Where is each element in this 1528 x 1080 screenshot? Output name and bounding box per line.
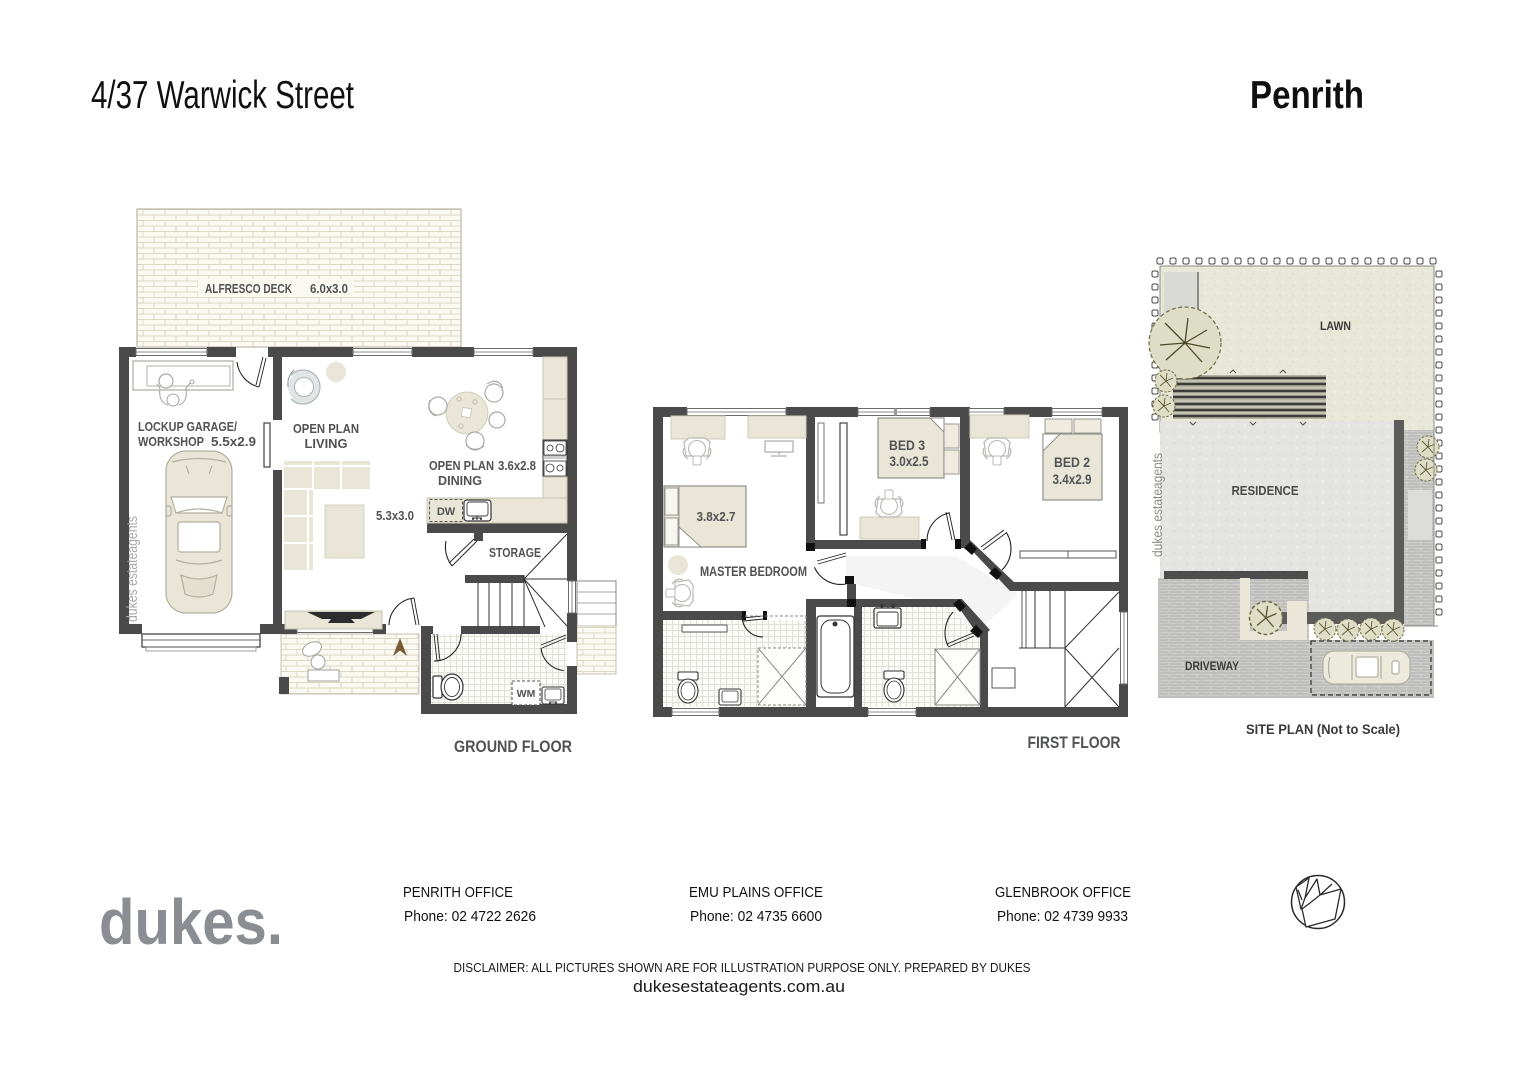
svg-text:3.8x2.7: 3.8x2.7 bbox=[697, 509, 736, 524]
svg-text:SITE PLAN (Not to Scale): SITE PLAN (Not to Scale) bbox=[1246, 722, 1400, 737]
svg-text:Phone: 02 4739 9933: Phone: 02 4739 9933 bbox=[997, 908, 1128, 925]
svg-text:dukes estateagents: dukes estateagents bbox=[1149, 453, 1165, 557]
svg-text:5.5x2.9: 5.5x2.9 bbox=[211, 434, 256, 449]
svg-text:MASTER BEDROOM: MASTER BEDROOM bbox=[700, 564, 807, 579]
svg-text:LOCKUP GARAGE/: LOCKUP GARAGE/ bbox=[138, 419, 237, 434]
svg-text:ALFRESCO DECK: ALFRESCO DECK bbox=[205, 282, 292, 296]
svg-text:3.4x2.9: 3.4x2.9 bbox=[1053, 472, 1092, 487]
svg-text:dukesestateagents.com.au: dukesestateagents.com.au bbox=[633, 977, 845, 996]
svg-text:DW: DW bbox=[437, 506, 456, 518]
svg-text:Phone: 02 4722 2626: Phone: 02 4722 2626 bbox=[404, 908, 536, 925]
svg-text:OPEN PLAN: OPEN PLAN bbox=[429, 458, 494, 473]
svg-text:3.6x2.8: 3.6x2.8 bbox=[498, 458, 536, 473]
svg-text:DISCLAIMER: ALL PICTURES SHOWN: DISCLAIMER: ALL PICTURES SHOWN ARE FOR I… bbox=[454, 961, 1031, 975]
svg-text:Penrith: Penrith bbox=[1250, 74, 1364, 117]
svg-text:5.3x3.0: 5.3x3.0 bbox=[376, 508, 414, 523]
svg-text:BED 3: BED 3 bbox=[889, 438, 925, 453]
svg-text:OPEN PLAN: OPEN PLAN bbox=[293, 421, 359, 436]
svg-text:dukes estateagents: dukes estateagents bbox=[125, 516, 141, 622]
svg-text:WORKSHOP: WORKSHOP bbox=[138, 434, 204, 449]
svg-text:DRIVEWAY: DRIVEWAY bbox=[1185, 661, 1239, 673]
svg-text:WM: WM bbox=[517, 688, 536, 700]
svg-text:BED 2: BED 2 bbox=[1054, 455, 1090, 470]
svg-text:STORAGE: STORAGE bbox=[489, 545, 541, 560]
svg-text:EMU PLAINS OFFICE: EMU PLAINS OFFICE bbox=[689, 884, 823, 901]
svg-text:LIVING: LIVING bbox=[305, 436, 348, 451]
svg-text:DINING: DINING bbox=[438, 473, 482, 488]
svg-text:GLENBROOK OFFICE: GLENBROOK OFFICE bbox=[995, 884, 1131, 901]
svg-text:GROUND FLOOR: GROUND FLOOR bbox=[454, 738, 572, 756]
svg-text:dukes.: dukes. bbox=[99, 886, 283, 958]
svg-text:RESIDENCE: RESIDENCE bbox=[1232, 483, 1299, 498]
svg-text:4/37 Warwick Street: 4/37 Warwick Street bbox=[91, 74, 354, 117]
svg-text:6.0x3.0: 6.0x3.0 bbox=[310, 282, 348, 296]
svg-text:Phone: 02 4735 6600: Phone: 02 4735 6600 bbox=[690, 908, 822, 925]
svg-text:3.0x2.5: 3.0x2.5 bbox=[890, 454, 929, 469]
svg-text:FIRST FLOOR: FIRST FLOOR bbox=[1028, 734, 1121, 752]
svg-text:PENRITH OFFICE: PENRITH OFFICE bbox=[403, 884, 513, 901]
svg-text:LAWN: LAWN bbox=[1320, 321, 1351, 333]
